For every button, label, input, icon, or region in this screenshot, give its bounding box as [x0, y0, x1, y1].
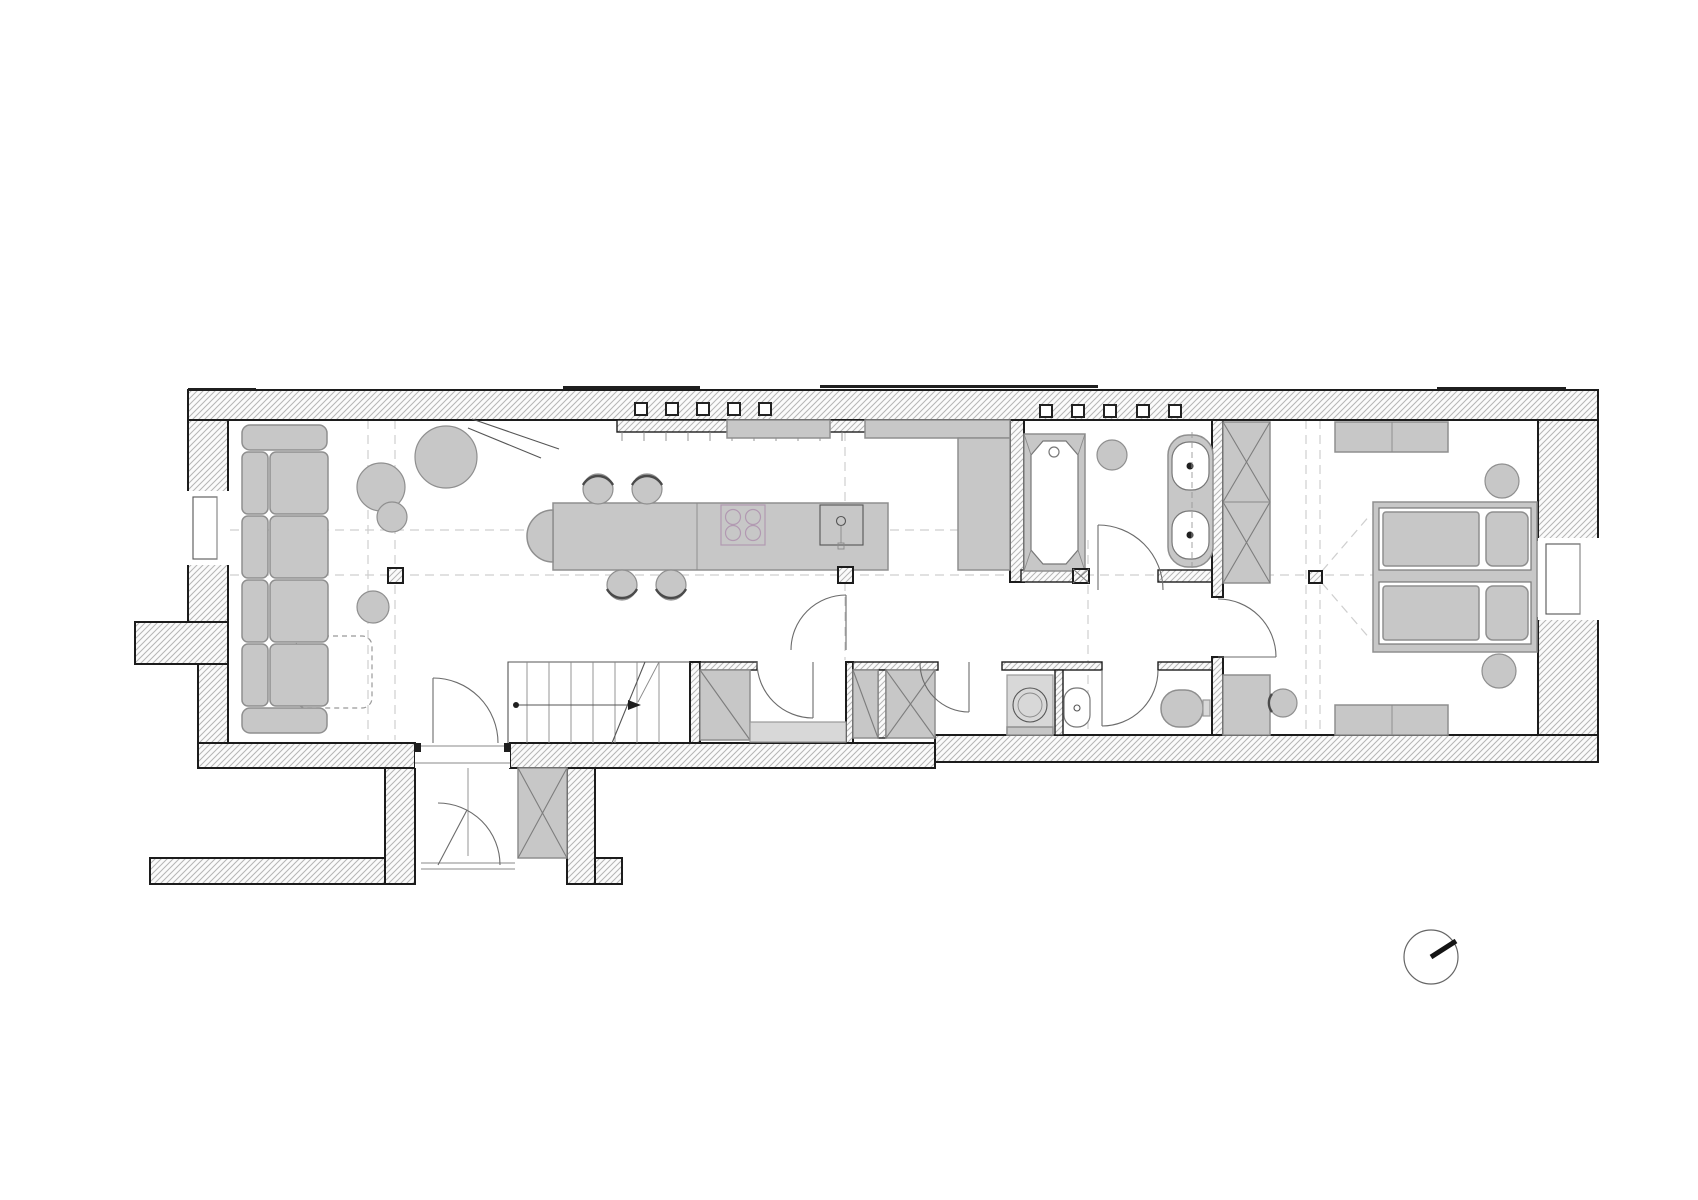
bathroom: [1024, 432, 1213, 571]
wall-right-lower: [1538, 618, 1598, 735]
wall-left-upper: [188, 420, 228, 493]
closet1-door-swing: [757, 662, 813, 718]
sofa-seat: [270, 644, 328, 706]
ceiling-element-line-2: [468, 428, 541, 458]
corridor-door-swing: [791, 595, 846, 650]
ref-ray-up: [1322, 514, 1371, 571]
closet1-low-cabinet: [750, 722, 846, 742]
stair-arrow-head: [628, 700, 641, 710]
vestibule-wall-right: [567, 768, 595, 884]
ceiling-element-line: [472, 419, 559, 449]
wall-bottom-left-a: [198, 743, 415, 768]
wall-left-lower: [198, 664, 228, 743]
washing-machine: [1007, 675, 1053, 735]
wc-cap-wall: [1158, 662, 1212, 670]
clerestory-window: [759, 403, 771, 415]
corridor-wall-right-lower: [1212, 657, 1223, 735]
clerestory-window: [728, 403, 740, 415]
closet2-partition: [878, 670, 886, 738]
kitchen-tall-unit: [958, 438, 1010, 570]
clerestory-window: [697, 403, 709, 415]
column: [1309, 571, 1322, 583]
floor-plan-drawing: [0, 0, 1698, 1200]
laundry-wc-partition: [1055, 670, 1063, 735]
ref-ray-down: [1322, 583, 1371, 640]
wc-door-swing: [1102, 670, 1158, 726]
stair-break-line-2: [638, 662, 659, 702]
wall-left-protrusion: [135, 622, 228, 664]
bedroom-cabinet-top: [1335, 422, 1448, 452]
floor-plan-page: [0, 0, 1698, 1200]
washer-plinth: [1007, 727, 1053, 735]
sofa-back-cushion: [242, 644, 268, 706]
closet1-cap-wall: [700, 662, 757, 670]
lintel-kitchen: [820, 385, 1098, 388]
wall-right-upper: [1538, 420, 1598, 540]
bathroom-wall-bottom-b: [1158, 570, 1212, 582]
bedroom-door-swing: [1218, 599, 1276, 657]
jamb-left: [415, 743, 421, 752]
sofa-back-cushion: [242, 580, 268, 642]
clerestory-window: [666, 403, 678, 415]
vestibule-stub-right: [595, 858, 622, 884]
clerestory-window: [1137, 405, 1149, 417]
laundry-cap-wall: [1002, 662, 1102, 670]
living-entry-threshold: [415, 743, 510, 768]
entry-door-leaf: [438, 810, 467, 865]
clerestory-window: [1104, 405, 1116, 417]
mattress: [1383, 512, 1479, 566]
lintel-mid: [563, 386, 700, 389]
sofa-seat: [270, 452, 328, 514]
dressing-stool: [1269, 689, 1297, 717]
bathroom-wall-left: [1010, 420, 1024, 582]
bathtub-basin: [1031, 441, 1078, 564]
tub-drain: [1049, 447, 1059, 457]
toilet-cistern: [1203, 700, 1210, 716]
column: [838, 567, 853, 583]
stairs-outline: [508, 662, 690, 743]
bedroom-cabinet-bottom: [1335, 705, 1448, 735]
half-round-bench: [527, 510, 553, 562]
rug-round-large: [415, 426, 477, 488]
vestibule-band-left: [150, 858, 385, 884]
wall-left-mid: [188, 563, 228, 628]
bathroom-door-swing: [1098, 525, 1163, 590]
entry-threshold: [421, 858, 515, 884]
right-window-niche: [1538, 538, 1600, 620]
stair-start-dot: [513, 702, 519, 708]
vestibule-wall-left: [385, 768, 415, 884]
closet1-wall-right: [846, 662, 853, 743]
mattress: [1383, 586, 1479, 640]
pillow: [1486, 512, 1528, 566]
dressing-table: [1223, 675, 1270, 735]
jamb-right: [504, 743, 510, 752]
column: [388, 568, 403, 583]
bath-stool: [1097, 440, 1127, 470]
bathroom-wall-bottom-a: [1021, 570, 1073, 582]
sofa-seat: [270, 580, 328, 642]
wall-top: [188, 390, 1598, 420]
side-table-small: [377, 502, 407, 532]
closets-storage: [518, 422, 1270, 858]
wall-bottom-left-b: [510, 743, 935, 768]
sofa-armrest-top: [242, 425, 327, 450]
wall-bottom-right: [935, 735, 1598, 762]
toilet: [1161, 690, 1203, 727]
stairs-wall-right: [690, 662, 700, 743]
pouf: [357, 591, 389, 623]
wall-cabinet: [727, 420, 830, 438]
north-indicator: [1404, 930, 1458, 984]
sofa-armrest-bottom: [242, 708, 327, 733]
kitchen-dining: [527, 420, 1010, 600]
entry-door-swing: [438, 803, 500, 865]
laundry-basin: [1064, 688, 1090, 727]
tall-wardrobe: [1223, 422, 1270, 583]
nightstand: [1482, 654, 1516, 688]
clerestory-window: [635, 403, 647, 415]
lintel-right: [1437, 387, 1566, 390]
sofa-back-cushion: [242, 452, 268, 514]
sofa-back-cushion: [242, 516, 268, 578]
sofa-seat: [270, 516, 328, 578]
plan-root: [135, 385, 1600, 984]
stairs: [508, 662, 690, 743]
nightstand: [1485, 464, 1519, 498]
closet2-cap-wall: [853, 662, 938, 670]
pillow: [1486, 586, 1528, 640]
clerestory-window: [1072, 405, 1084, 417]
lintel-left: [188, 388, 256, 391]
clerestory-window: [1169, 405, 1181, 417]
living-entry-door-swing: [433, 678, 498, 743]
clerestory-window: [1040, 405, 1052, 417]
kitchen-counter: [865, 420, 1010, 438]
